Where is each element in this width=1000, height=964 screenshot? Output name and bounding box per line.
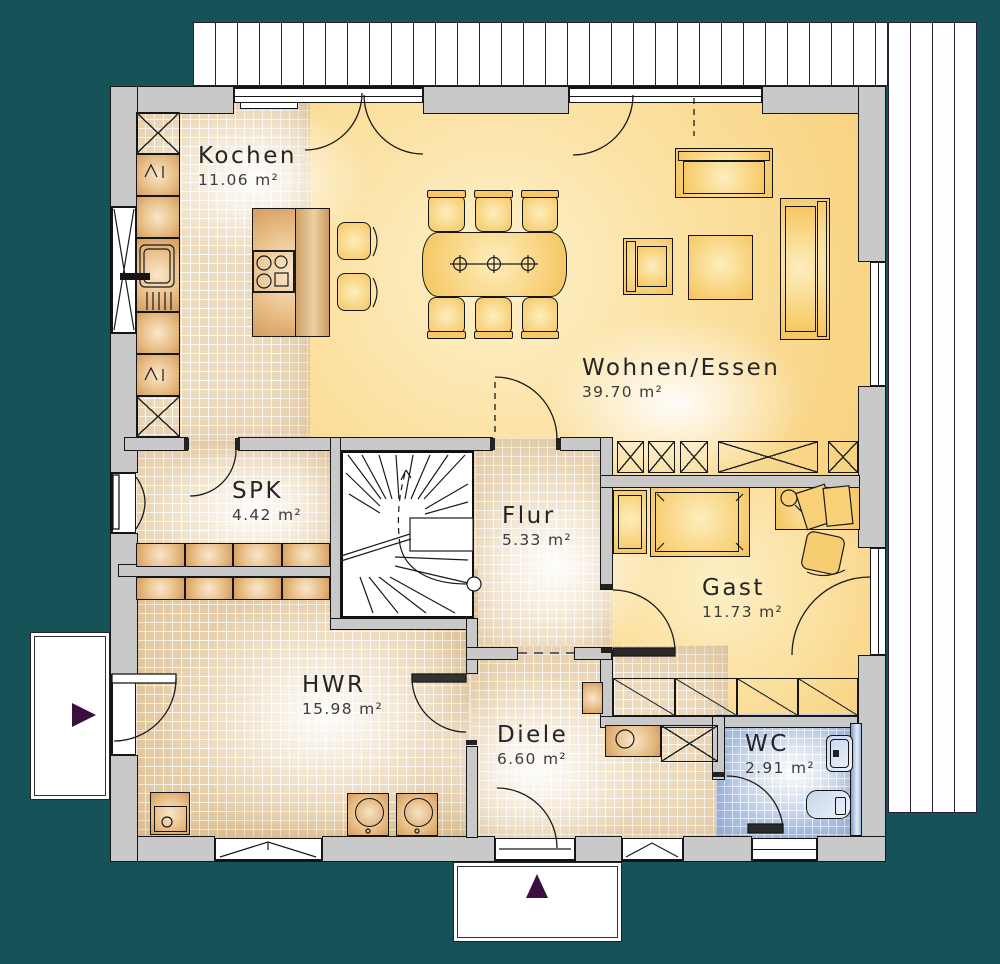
room-label-kochen: Kochen 11.06 m²	[198, 143, 297, 189]
utility-sink	[150, 792, 190, 835]
room-label-hwr: HWR 15.98 m²	[302, 672, 383, 718]
dryer	[396, 793, 438, 836]
sofa	[675, 148, 773, 198]
dining-table	[422, 232, 567, 297]
room-name: Diele	[497, 722, 568, 748]
shelf-cell	[282, 543, 331, 567]
wall	[817, 836, 886, 862]
hall-sideboard	[605, 725, 661, 757]
utility-shelf	[136, 577, 330, 600]
room-area: 11.06 m²	[198, 172, 297, 189]
shelf-cell	[136, 577, 185, 600]
room-flur-floor	[466, 438, 612, 668]
bed-headboard	[613, 490, 647, 554]
room-label-spk: SPK 4.42 m²	[232, 478, 302, 524]
bar-stool	[337, 222, 371, 260]
wall	[858, 386, 886, 548]
armchair	[623, 238, 673, 295]
wardrobe	[737, 678, 798, 716]
window	[112, 207, 136, 333]
wall	[466, 647, 518, 660]
room-label-diele: Diele 6.60 m²	[497, 722, 568, 768]
room-name: Kochen	[198, 143, 297, 169]
side-porch	[30, 632, 110, 800]
wardrobe	[798, 678, 858, 716]
door-opening	[112, 473, 136, 533]
kitchen-cabinet	[136, 312, 180, 354]
wall	[858, 655, 886, 862]
window	[215, 838, 322, 860]
room-label-wohnen: Wohnen/Essen 39.70 m²	[582, 355, 780, 401]
window	[752, 838, 817, 860]
coffee-table	[688, 235, 753, 300]
wardrobe	[613, 678, 675, 716]
room-area: 2.91 m²	[745, 760, 815, 777]
shelf-cell	[233, 577, 282, 600]
kitchen-sink-cabinet	[136, 238, 180, 312]
wall	[683, 836, 752, 862]
room-name: HWR	[302, 672, 383, 698]
room-name: Gast	[702, 575, 783, 601]
door-opening	[112, 675, 136, 755]
room-label-gast: Gast 11.73 m²	[702, 575, 783, 621]
sofa	[780, 198, 830, 340]
kitchen-cabinet	[136, 196, 180, 238]
kitchen-cabinet	[136, 112, 180, 154]
room-area: 15.98 m²	[302, 701, 383, 718]
shelf-cell	[185, 577, 234, 600]
dining-chair	[428, 194, 465, 232]
wall	[110, 333, 138, 473]
window-sill	[240, 102, 298, 109]
wall	[423, 86, 569, 114]
wall	[124, 437, 188, 451]
kitchen-appliance	[136, 154, 180, 196]
wall	[574, 647, 612, 660]
sideboard	[718, 441, 818, 473]
floor-plan: Kochen 11.06 m² Wohnen/Essen 39.70 m² SP…	[0, 0, 1000, 964]
wall	[466, 618, 478, 674]
side-entrance-arrow-icon	[72, 703, 96, 727]
room-name: Wohnen/Essen	[582, 355, 780, 381]
wall	[110, 86, 138, 207]
kitchen-cabinet	[136, 396, 180, 437]
dining-chair	[428, 297, 465, 335]
room-area: 39.70 m²	[582, 384, 780, 401]
wall	[858, 86, 886, 262]
wall	[322, 836, 495, 862]
bar-stool	[337, 273, 371, 311]
window	[234, 88, 423, 103]
pantry-shelf	[136, 543, 330, 567]
wall	[238, 437, 493, 451]
sideboard	[828, 441, 858, 473]
window	[622, 838, 683, 860]
staircase	[341, 451, 474, 618]
terrace-deck-right	[888, 22, 977, 813]
shelf-cell	[136, 543, 185, 567]
kitchen-island-counter	[295, 208, 330, 337]
wall	[330, 437, 341, 630]
wall	[110, 755, 138, 862]
wc-toilet	[806, 790, 851, 819]
wall	[466, 746, 478, 838]
shelf-cell	[185, 543, 234, 567]
hall-wardrobe	[661, 725, 718, 762]
room-area: 5.33 m²	[502, 532, 572, 549]
wc-sink	[826, 735, 853, 772]
room-area: 11.73 m²	[702, 604, 783, 621]
main-entrance-arrow-icon	[526, 874, 548, 898]
sideboard	[680, 441, 708, 473]
room-area: 6.60 m²	[497, 751, 568, 768]
window	[870, 262, 886, 386]
dining-chair	[475, 297, 512, 335]
window	[569, 88, 762, 103]
room-name: WC	[745, 731, 815, 757]
wall	[110, 533, 138, 675]
bed	[650, 487, 750, 557]
dining-chair	[475, 194, 512, 232]
wardrobe	[675, 678, 737, 716]
shelf-cell	[282, 577, 331, 600]
desk	[775, 487, 860, 530]
terrace-deck-top	[193, 22, 888, 86]
room-area: 4.42 m²	[232, 507, 302, 524]
room-label-wc: WC 2.91 m²	[745, 731, 815, 777]
hall-cabinet	[582, 682, 603, 714]
sideboard	[617, 441, 644, 473]
kitchen-appliance	[136, 354, 180, 396]
washing-machine	[347, 793, 389, 836]
sideboard	[648, 441, 675, 473]
room-name: SPK	[232, 478, 302, 504]
room-name: Flur	[502, 503, 572, 529]
shelf-cell	[233, 543, 282, 567]
terrace-door	[870, 548, 886, 655]
room-label-flur: Flur 5.33 m²	[502, 503, 572, 549]
dining-chair	[522, 297, 558, 335]
wall	[330, 618, 478, 630]
wall	[600, 437, 613, 590]
dining-chair	[522, 194, 558, 232]
wall	[575, 836, 622, 862]
entrance-door	[495, 838, 575, 860]
